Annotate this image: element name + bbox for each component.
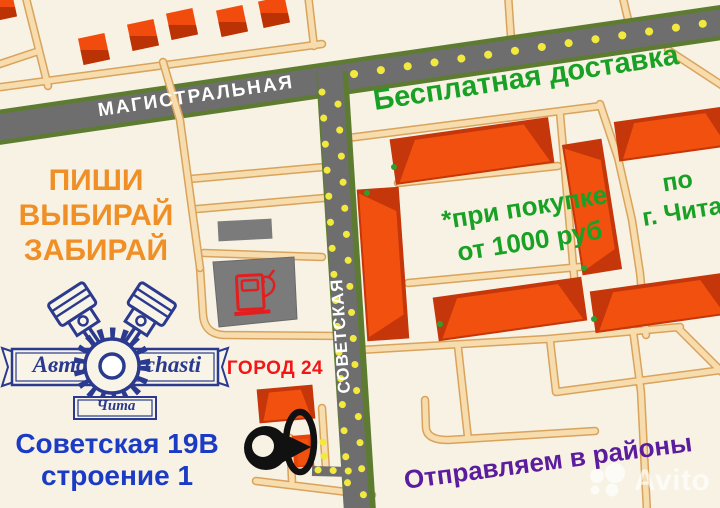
store-name: ГОРОД 24	[222, 358, 328, 380]
store-address: Советская 19В строение 1	[4, 428, 230, 492]
store-location-map: МАГИСТРАЛЬНАЯ СОВЕТСКАЯ Бесплатная доста…	[0, 0, 720, 508]
promo-cta-line1: ПИШИ	[6, 163, 186, 198]
logo-city: Чита	[78, 398, 154, 415]
logo-word-left: Авто	[22, 352, 98, 378]
promo-cta-line2: ВЫБИРАЙ	[6, 198, 186, 233]
promo-cta-line3: ЗАБИРАЙ	[6, 233, 186, 268]
logo-word-right: chasti	[130, 352, 216, 378]
store-address-line2: строение 1	[4, 460, 230, 492]
gas-station	[213, 219, 297, 327]
store-address-line1: Советская 19В	[4, 428, 230, 460]
avito-watermark: Avito	[584, 458, 720, 504]
promo-cta: ПИШИ ВЫБИРАЙ ЗАБИРАЙ	[6, 163, 186, 268]
avito-watermark-text: Avito	[634, 464, 710, 498]
avito-logo-dots	[584, 458, 632, 504]
